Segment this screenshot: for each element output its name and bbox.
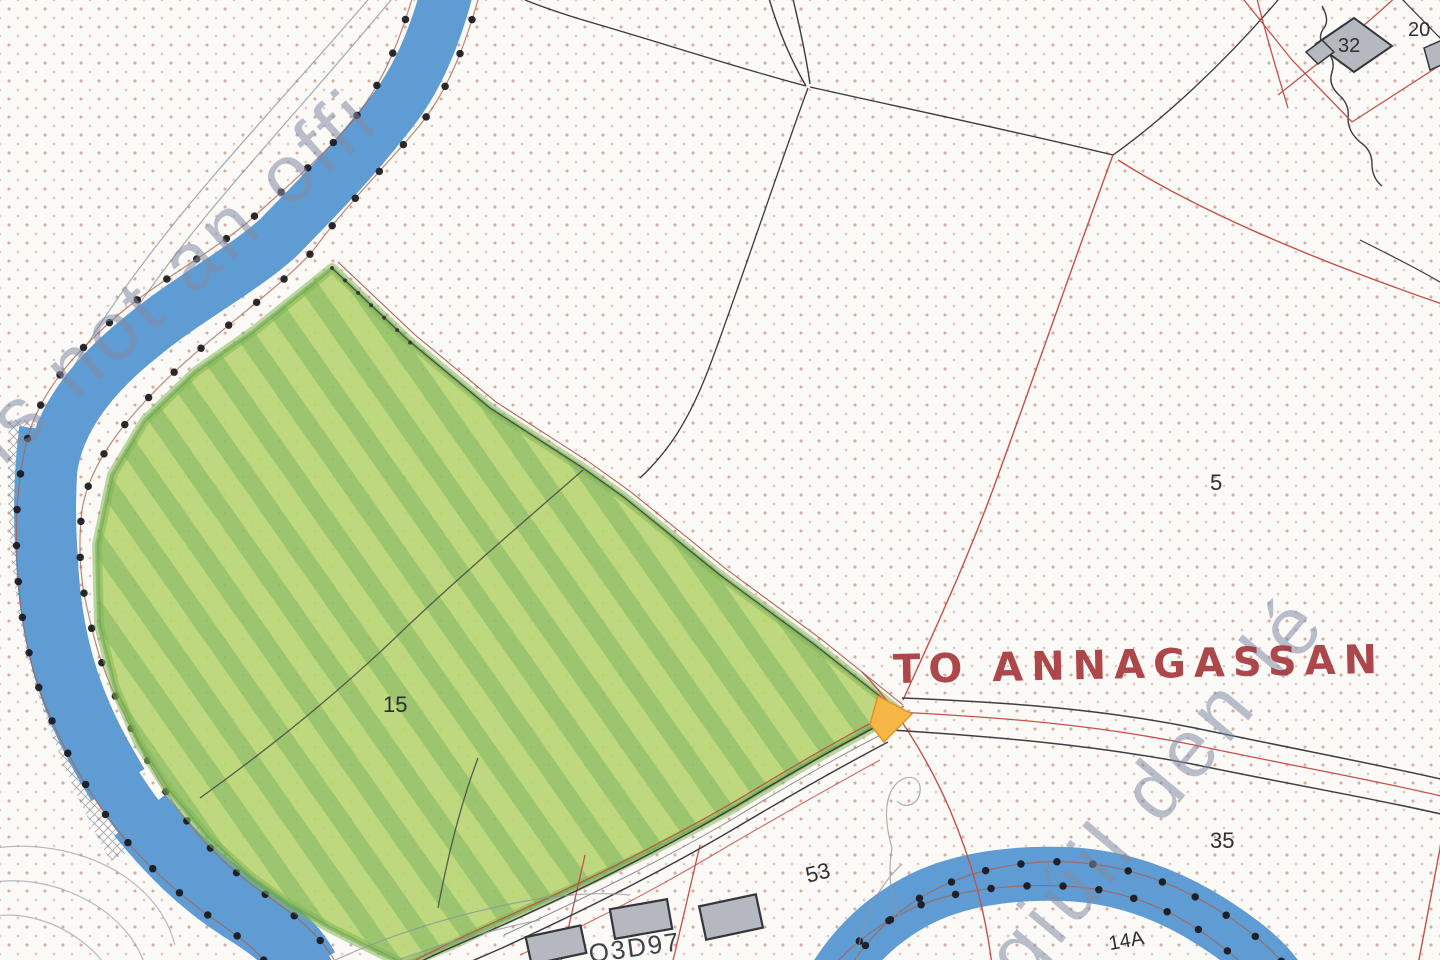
plot-number-15: 15 — [383, 692, 407, 717]
plot-number-32: 32 — [1338, 35, 1360, 57]
plot-number-53: 53 — [803, 858, 833, 888]
plot-number-20: 20 — [1408, 19, 1430, 41]
road-east — [891, 698, 1440, 815]
map-drawing: 15 5 35 53 20 32 14A O3D97 — [0, 0, 1440, 960]
scanned-map: 15 5 35 53 20 32 14A O3D97 is not an off… — [0, 0, 1440, 960]
plot-number-5: 5 — [1210, 470, 1222, 495]
plot-number-14a: 14A — [1107, 927, 1147, 955]
junction-highlight — [870, 696, 912, 742]
plot-number-35: 35 — [1210, 828, 1234, 853]
